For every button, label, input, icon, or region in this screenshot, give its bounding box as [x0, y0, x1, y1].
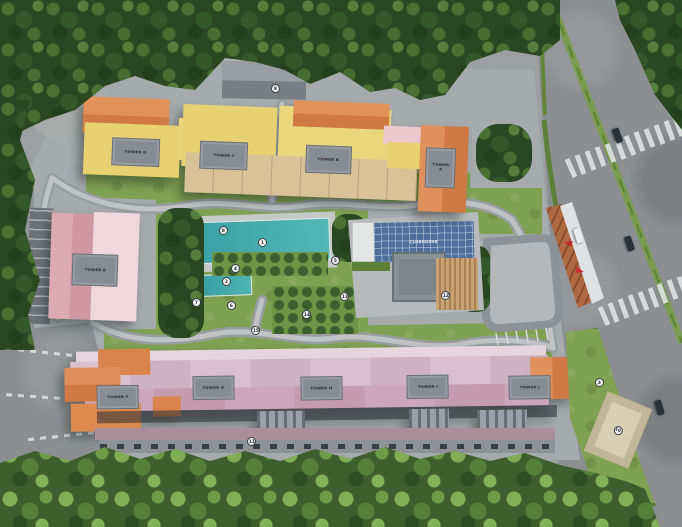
tower-e-label: TOWER E	[84, 267, 105, 272]
north-court-face	[222, 80, 306, 99]
tree-cluster-west-garden	[158, 208, 204, 338]
west-residential-tower: TOWER E	[46, 208, 142, 326]
tower-a-core: TOWER A	[425, 147, 457, 188]
tower-h-label: TOWER H	[311, 386, 333, 391]
tower-f-core: TOWER F	[96, 385, 138, 410]
tree-grid-central	[212, 252, 328, 276]
clubhouse-green-wall	[352, 262, 390, 271]
tower-c-core: TOWER C	[199, 141, 248, 171]
amenity-marker: 10	[612, 424, 624, 436]
tower-b-label: TOWER B	[318, 157, 340, 162]
amenity-marker: 11	[247, 437, 256, 446]
clubhouse-label: CLUBHOUSE	[410, 240, 438, 245]
amenity-marker: 7	[192, 298, 201, 307]
tree-cluster-east-entry	[476, 124, 532, 182]
tower-i-core: TOWER I	[406, 375, 448, 400]
tower-d-core: TOWER D	[111, 137, 160, 167]
clubhouse-timber-pergola	[436, 258, 478, 310]
amenity-marker: 6	[227, 301, 236, 310]
tower-g-core: TOWER G	[192, 376, 234, 401]
amenity-marker: 2	[222, 277, 231, 286]
tower-b-core: TOWER B	[305, 145, 352, 175]
tower-c-label: TOWER C	[213, 153, 235, 158]
site-plan-aerial-view: CLUBHOUSE TOWER D TOWER C TOWER B TOWER …	[0, 0, 682, 527]
amenity-marker: 5	[331, 256, 340, 265]
tower-e-core: TOWER E	[71, 253, 118, 287]
tower-h-core: TOWER H	[300, 376, 342, 401]
tower-g-label: TOWER G	[203, 385, 225, 390]
tower-j-core: TOWER J	[508, 375, 550, 400]
amenity-marker: 14	[302, 310, 311, 319]
tower-f-label: TOWER F	[107, 395, 128, 400]
amenity-marker: 15	[251, 326, 260, 335]
amenity-marker: 4	[231, 264, 240, 273]
amenity-marker: 9	[271, 84, 280, 93]
tower-i-label: TOWER I	[417, 384, 437, 389]
amenity-marker: 1	[258, 238, 267, 247]
amenity-marker: 8	[219, 226, 228, 235]
tower-d-label: TOWER D	[125, 150, 147, 155]
south-walk-strip	[95, 428, 555, 440]
tower-j-label: TOWER J	[520, 385, 540, 390]
north-residential-row: TOWER D TOWER C TOWER B TOWER A	[76, 92, 480, 219]
amenity-marker: 12	[441, 291, 450, 300]
tower-a-label: TOWER A	[432, 163, 449, 172]
roof-block-orange	[293, 100, 390, 130]
amenity-marker: 3	[595, 378, 604, 387]
amenity-marker: 13	[340, 292, 349, 301]
